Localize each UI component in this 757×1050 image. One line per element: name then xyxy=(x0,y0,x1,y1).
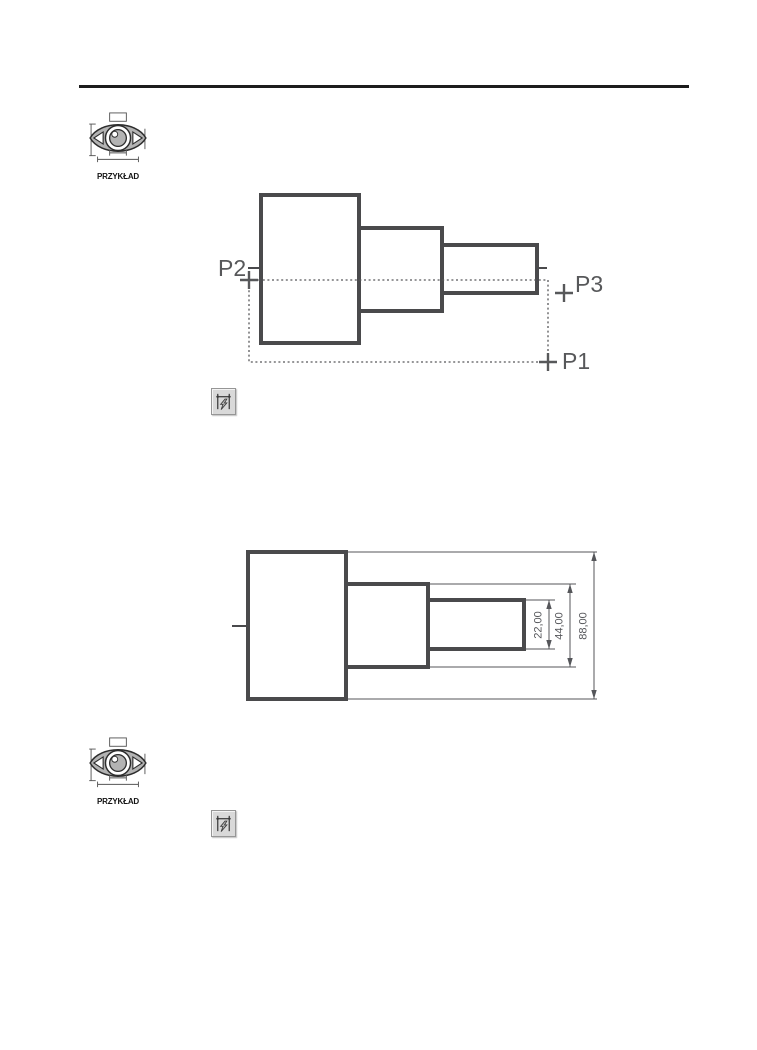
example-marker-1: PRZYKŁAD xyxy=(82,112,154,181)
quick-dimension-icon xyxy=(212,390,235,413)
shaft-section-small xyxy=(428,600,524,649)
point-label-p1: P1 xyxy=(562,348,590,374)
quick-dimension-button-2[interactable] xyxy=(211,810,236,837)
shaft-section-medium xyxy=(346,584,428,667)
point-marker-p3 xyxy=(555,284,573,302)
quick-dimension-button-1[interactable] xyxy=(211,388,236,415)
point-label-p2: P2 xyxy=(218,255,246,281)
selection-drawing: P2 P3 P1 xyxy=(210,185,610,380)
header-rule xyxy=(79,85,689,88)
quick-dimension-icon xyxy=(212,812,235,835)
point-marker-p1 xyxy=(539,353,557,371)
shaft-section-large xyxy=(248,552,346,699)
shaft-section-large xyxy=(261,195,359,343)
dimensioned-eye-icon xyxy=(86,112,150,164)
dimension-value-88: 88,00 xyxy=(578,612,590,640)
point-label-p3: P3 xyxy=(575,271,603,297)
shaft-section-small xyxy=(442,245,537,293)
example-label: PRZYKŁAD xyxy=(82,797,154,806)
dimension-22: 22,00 xyxy=(533,600,552,649)
dimension-value-44: 44,00 xyxy=(554,612,566,640)
example-label: PRZYKŁAD xyxy=(82,172,154,181)
dimension-44: 44,00 xyxy=(554,584,573,667)
eye-highlight xyxy=(112,131,118,137)
dimension-drawing: 22,00 44,00 88,00 xyxy=(225,545,615,710)
dimension-value-22: 22,00 xyxy=(533,611,545,639)
book-page: PRZYKŁAD P2 P3 P1 xyxy=(0,0,757,1050)
shaft-section-medium xyxy=(359,228,442,311)
dimension-88: 88,00 xyxy=(578,552,597,699)
eye-highlight xyxy=(112,756,118,762)
dimensioned-eye-icon xyxy=(86,737,150,789)
example-marker-2: PRZYKŁAD xyxy=(82,737,154,806)
lightning-glyph xyxy=(221,399,227,410)
lightning-glyph xyxy=(221,821,227,832)
